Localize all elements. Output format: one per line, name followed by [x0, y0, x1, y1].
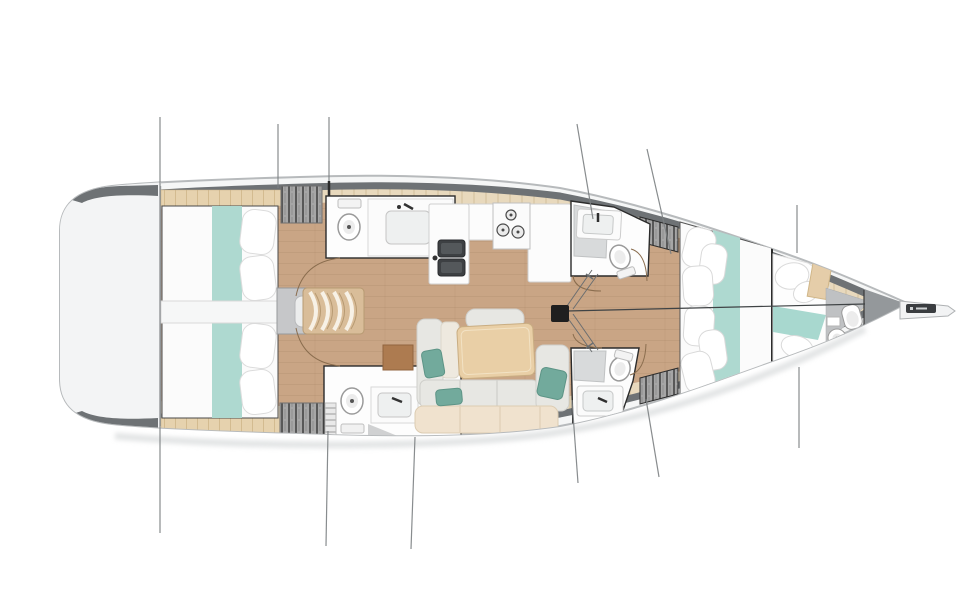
washbasin — [378, 393, 411, 417]
washbasin — [386, 211, 430, 244]
swim-platform — [58, 182, 161, 434]
wardrobe — [280, 403, 323, 441]
pillow — [238, 208, 277, 256]
pillow — [238, 322, 277, 370]
roller-detail — [910, 307, 913, 310]
pillow — [238, 368, 277, 416]
teal-pillow — [421, 348, 445, 378]
toilet-tank — [341, 424, 364, 433]
swim-platform-deck — [58, 182, 161, 434]
galley-sink-bowl — [441, 243, 462, 254]
pillow — [682, 265, 715, 307]
headboard — [161, 190, 282, 206]
bowsprit — [900, 301, 955, 319]
aft-cabin-starboard — [161, 322, 282, 434]
teal-pillow — [435, 388, 462, 406]
cabinet — [827, 317, 840, 326]
burner-dot — [517, 231, 520, 234]
burner-dot — [510, 214, 513, 217]
toilet-tank — [338, 199, 361, 208]
teal-pillow — [536, 367, 567, 401]
berth-teal-runner — [212, 206, 242, 302]
aft-cabin-port — [161, 190, 282, 302]
settee-bench — [415, 406, 558, 433]
mast-foot — [551, 305, 569, 322]
berth-teal-runner — [212, 322, 242, 418]
wardrobe — [281, 186, 322, 223]
faucet-base — [397, 205, 401, 209]
galley-sink-bowl — [441, 262, 462, 273]
bow-cabin — [773, 254, 904, 366]
boat-plan — [0, 0, 960, 606]
toilet-drain — [347, 225, 351, 229]
nav-cabinet — [383, 345, 413, 370]
galley-faucet — [433, 256, 438, 261]
toilet-drain — [350, 399, 354, 403]
salon-table — [457, 323, 536, 379]
washbasin — [583, 391, 613, 411]
pillow — [238, 254, 277, 302]
burner-dot — [502, 229, 505, 232]
galley-counter — [528, 204, 571, 282]
boat-plan-drawing — [0, 0, 960, 606]
corridor — [161, 301, 277, 323]
roller-detail — [916, 308, 927, 310]
shower-pan — [574, 351, 606, 382]
bow-wedge — [864, 289, 904, 338]
headboard — [161, 418, 282, 434]
